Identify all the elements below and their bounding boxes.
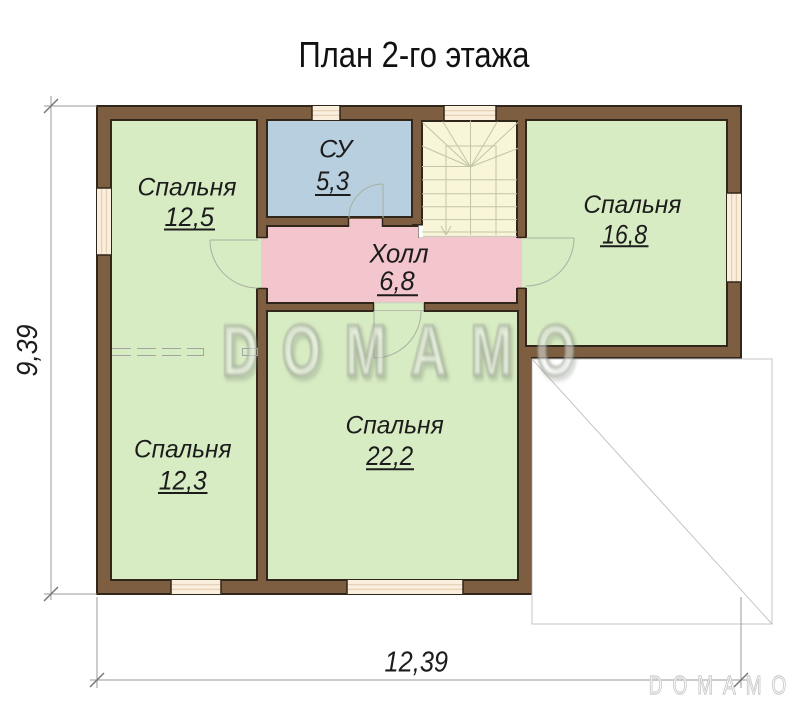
svg-text:16,8: 16,8: [602, 220, 647, 250]
svg-text:12,3: 12,3: [159, 466, 207, 496]
svg-text:DOMAMO: DOMAMO: [222, 311, 599, 391]
svg-text:Спальня: Спальня: [345, 412, 443, 440]
svg-text:22,2: 22,2: [365, 441, 413, 471]
svg-text:План 2-го этажа: План 2-го этажа: [299, 34, 531, 75]
svg-text:DOMAMO: DOMAMO: [649, 671, 797, 699]
svg-text:Спальня: Спальня: [583, 191, 681, 219]
svg-text:12,39: 12,39: [385, 647, 449, 679]
svg-text:Холл: Холл: [369, 239, 429, 269]
svg-text:5,3: 5,3: [316, 166, 349, 196]
svg-text:12,5: 12,5: [165, 202, 215, 232]
svg-text:9,39: 9,39: [12, 325, 44, 377]
svg-text:Спальня: Спальня: [138, 174, 237, 202]
svg-text:Спальня: Спальня: [134, 435, 232, 463]
svg-text:6,8: 6,8: [379, 266, 415, 296]
svg-text:СУ: СУ: [319, 136, 355, 164]
